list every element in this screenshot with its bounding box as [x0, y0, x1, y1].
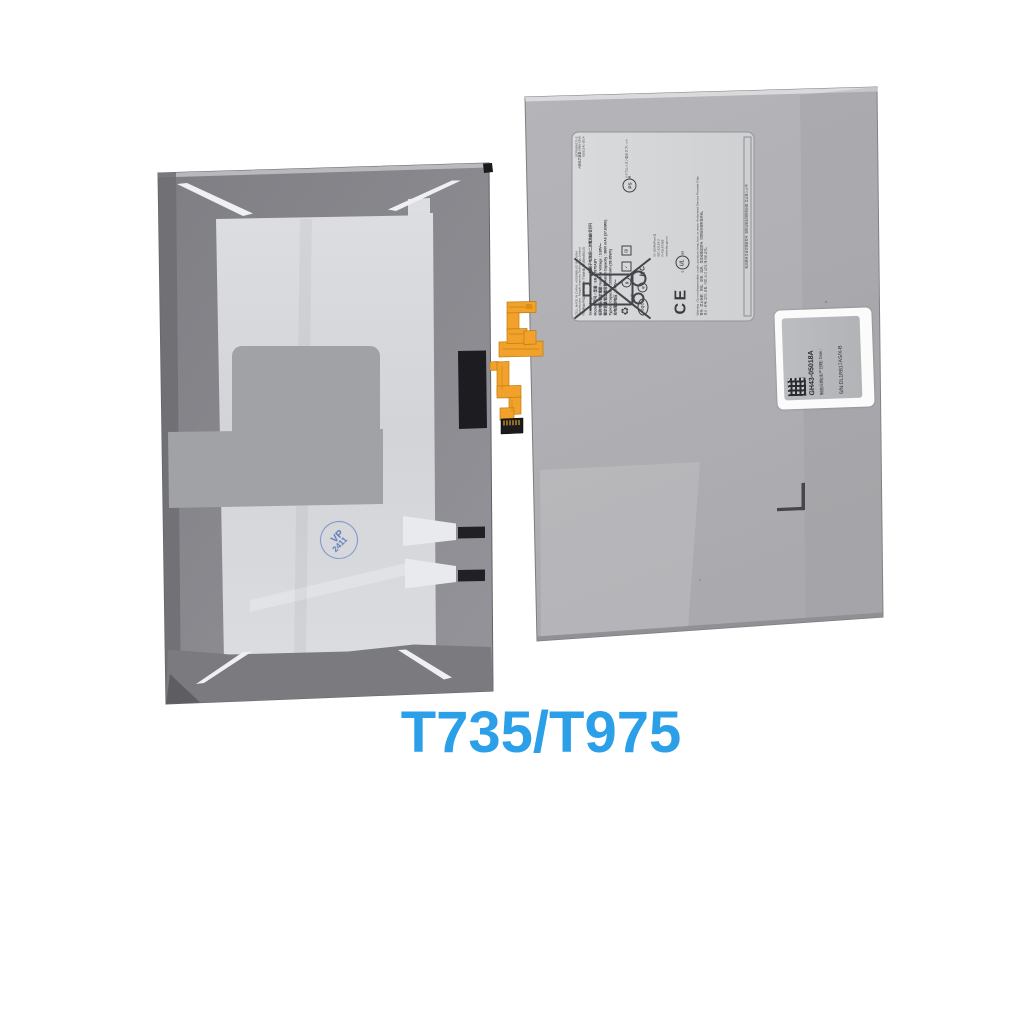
- manufacture-date-label: 制造日期(生产日期) Date :: [818, 349, 826, 396]
- flex-stiffener: [526, 304, 532, 309]
- ul-us-text: us: [681, 251, 685, 255]
- gray-overlay-rect: [232, 346, 380, 446]
- bis-certification-text: IS 16046(Part 2) IEC 62133-2 R-41157359 …: [653, 201, 669, 257]
- warning-korean: 경고 : 분해, 압착, 관통, 가열, 소각 금지, 재사용 금지。: [704, 166, 708, 316]
- product-photo: CELL MADE IN CHINA, ASSEMBLED IN CHINA M…: [0, 0, 1024, 1024]
- crossed-bin-icon: [573, 257, 653, 321]
- battery-photo-canvas: [0, 0, 1024, 1024]
- flex-cable-lower: [490, 362, 523, 435]
- surface-speck: [699, 579, 701, 581]
- barcode-sticker: GH43-05018A 制造日期(生产日期) Date : S/N:DL1R81…: [774, 307, 874, 409]
- disposal-notice-strip: 电池使用后请勿随意丢弃, 请按当地法规回收处理, 禁止投入火中: [744, 137, 752, 317]
- product-model-title: T735/T975: [58, 699, 1024, 766]
- battery-spec-label: CELL MADE IN CHINA, ASSEMBLED IN CHINA M…: [572, 132, 755, 322]
- barcode-sticker-inner: GH43-05018A 制造日期(生产日期) Date : S/N:DL1R81…: [782, 316, 863, 401]
- part-number: GH43-05018A: [808, 350, 817, 395]
- label-codes: 1ICP5/58/171-2 A级电芯容量:5588-3368 GB31241-…: [575, 137, 586, 197]
- serial-number: S/N:DL1R817AS/X-B: [838, 345, 846, 394]
- surface-speck: [825, 301, 827, 303]
- ul-c-text: c: [681, 271, 685, 273]
- ul-mark: c UL us: [676, 247, 690, 273]
- grid-mark-icon: ⊞: [622, 246, 632, 256]
- black-tab-2: [458, 570, 485, 582]
- warning-text: Warning : Do not disassemble, crush, pun…: [697, 166, 709, 316]
- battery-connector-block: [458, 351, 487, 430]
- black-tab-1: [458, 527, 485, 539]
- right-battery-sheen: [540, 462, 700, 636]
- ul-circle: UL: [676, 256, 690, 270]
- qr-code: [788, 378, 807, 397]
- left-battery: [158, 163, 493, 704]
- standard-code: GB31241-2014: [582, 137, 586, 197]
- corner-notch-black: [483, 163, 493, 173]
- japanese-battery-text: リチウムイオン電池 タブレット用: [626, 137, 633, 179]
- bis-url: www.bis.gov.in: [665, 201, 669, 257]
- flex-connector: [501, 418, 523, 434]
- pse-mark: PS: [623, 179, 637, 193]
- ce-mark: CE: [673, 287, 691, 314]
